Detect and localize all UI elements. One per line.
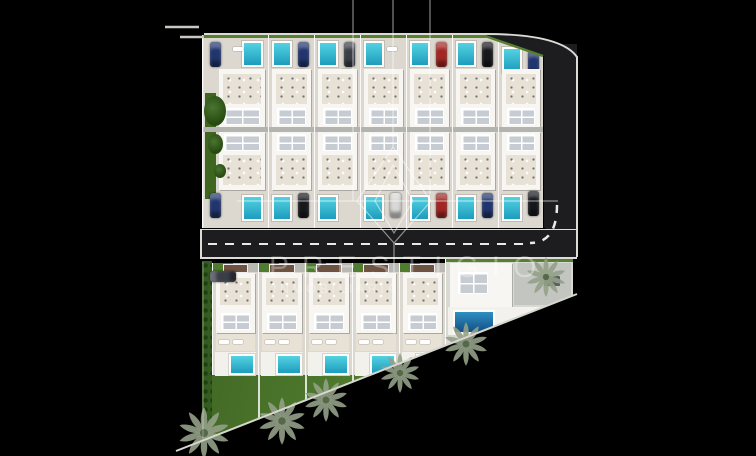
sun-lounger [420,340,430,344]
villa-plot-1 [202,35,268,228]
parked-car [210,271,236,282]
site-plan-scene: PRESTIGIO INMOBILIARIA [0,0,756,456]
villa-roof [450,263,512,307]
south-villa-block [202,259,573,456]
swimming-pool [410,41,430,67]
parked-car [298,193,309,218]
skylight-panel [323,134,352,151]
skylight-panel [415,134,444,151]
villa-roof [309,273,349,333]
parked-car [210,193,221,218]
side-road [546,44,577,229]
skylight-panel [408,313,437,330]
villa-roof [456,69,495,127]
villa-roof [502,132,540,190]
villa-roof [410,132,449,190]
swimming-pool [242,195,263,221]
swimming-pool [318,41,338,67]
roof-terrace [506,74,536,104]
villa-plot-9 [258,263,305,375]
swimming-pool [364,41,384,67]
swimming-pool [318,195,338,221]
skylight-panel [323,108,352,125]
swimming-pool [410,195,430,221]
sun-lounger [406,340,416,344]
pergola [316,264,342,273]
sun-lounger [279,340,289,344]
outdoor-table [544,276,560,286]
pergola [363,264,389,273]
swimming-pool [242,41,263,67]
parked-car [482,42,493,67]
villa-roof [219,132,265,190]
roof-terrace [220,278,251,305]
parked-car [528,191,539,216]
sun-lounger [233,47,243,51]
villa-roof [272,132,311,190]
swimming-pool [276,354,302,375]
parked-car [482,193,493,218]
top-road-markings [165,27,204,37]
villa-roof [318,69,357,127]
villa-roof [219,69,265,127]
skylight-panel [415,108,444,125]
parked-car [436,193,447,218]
roof-terrace [223,155,261,185]
roof-terrace [360,278,392,305]
roof-terrace [322,74,353,104]
hedge [446,259,573,262]
corner-estate-plot [445,259,573,409]
hedge [315,35,360,38]
skylight-panel [361,313,391,330]
skylight-panel [507,108,535,125]
roof-terrace [368,155,399,185]
villa-roof [272,69,311,127]
swimming-pool [370,354,396,375]
sun-lounger [387,47,397,51]
roof-terrace [276,74,307,104]
villa-plot-4 [360,35,406,228]
bush [214,164,226,178]
roof-terrace [407,278,438,305]
skylight-panel [277,108,306,125]
sun-lounger [265,340,275,344]
skylight-panel [224,134,260,151]
roof-terrace [460,155,491,185]
swimming-pool [229,354,255,375]
pergola [269,264,295,273]
skylight-panel [507,134,535,151]
swimming-pool [272,195,292,221]
parked-car [390,193,401,218]
hedge [269,35,314,38]
villa-roof [356,273,396,333]
parked-car [298,42,309,67]
sun-lounger [359,340,369,344]
roof-terrace [276,155,307,185]
swimming-pool [323,354,349,375]
skylight-panel [369,134,398,151]
swimming-pool [456,195,476,221]
skylight-panel [314,313,344,330]
pergola [410,264,435,273]
swimming-pool [502,195,522,221]
skylight-panel [267,313,297,330]
villa-plot-10 [305,263,352,375]
villa-roof [262,273,302,333]
bush [208,134,223,154]
swimming-pool [453,310,495,334]
villa-roof [456,132,495,190]
hedge [407,35,452,38]
communal-lawn [202,375,445,456]
road-center-line [556,48,559,208]
roof-terrace [322,155,353,185]
sun-lounger [326,340,336,344]
skylight-panel [221,313,250,330]
swimming-pool [416,354,442,375]
sun-lounger [219,340,229,344]
villa-roof [216,273,255,333]
plot-fence [258,371,260,456]
sun-lounger [373,340,383,344]
parked-car [344,42,355,67]
hedge [453,35,498,38]
skylight-panel [277,134,306,151]
sun-lounger [233,340,243,344]
swimming-pool [456,41,476,67]
villa-plot-6 [452,35,498,228]
bush [204,96,226,126]
hedge [203,35,268,38]
north-villa-block [202,35,543,228]
roof-terrace [313,278,345,305]
skylight-panel [461,134,490,151]
main-road [200,229,577,259]
villa-plot-7 [498,35,543,228]
plot-fence [305,371,307,456]
villa-roof [318,132,357,190]
roof-terrace [506,155,536,185]
skylight-panel [458,272,488,294]
plot-fence [399,371,401,456]
sun-lounger [312,340,322,344]
swimming-pool [364,195,384,221]
road-center-line [208,243,531,246]
hedge [499,35,543,38]
roof-terrace [223,74,261,104]
skylight-panel [224,108,260,125]
villa-plot-11 [352,263,399,375]
villa-roof [364,69,403,127]
villa-roof [410,69,449,127]
hedge [361,35,406,38]
roof-terrace [266,278,298,305]
vine-covered-wall [202,261,212,421]
villa-roof [364,132,403,190]
parked-car [210,42,221,67]
roof-terrace [414,74,445,104]
swimming-pool [272,41,292,67]
roof-terrace [414,155,445,185]
plot-fence [352,371,354,456]
villa-roof [502,69,540,127]
roof-terrace [460,74,491,104]
pool-deck [402,352,443,376]
parked-car [436,42,447,67]
skylight-panel [369,108,398,125]
villa-plot-3 [314,35,360,228]
villa-roof [403,273,442,333]
villa-plot-2 [268,35,314,228]
skylight-panel [461,108,490,125]
roof-terrace [368,74,399,104]
villa-plot-12 [399,263,445,375]
villa-plot-5 [406,35,452,228]
